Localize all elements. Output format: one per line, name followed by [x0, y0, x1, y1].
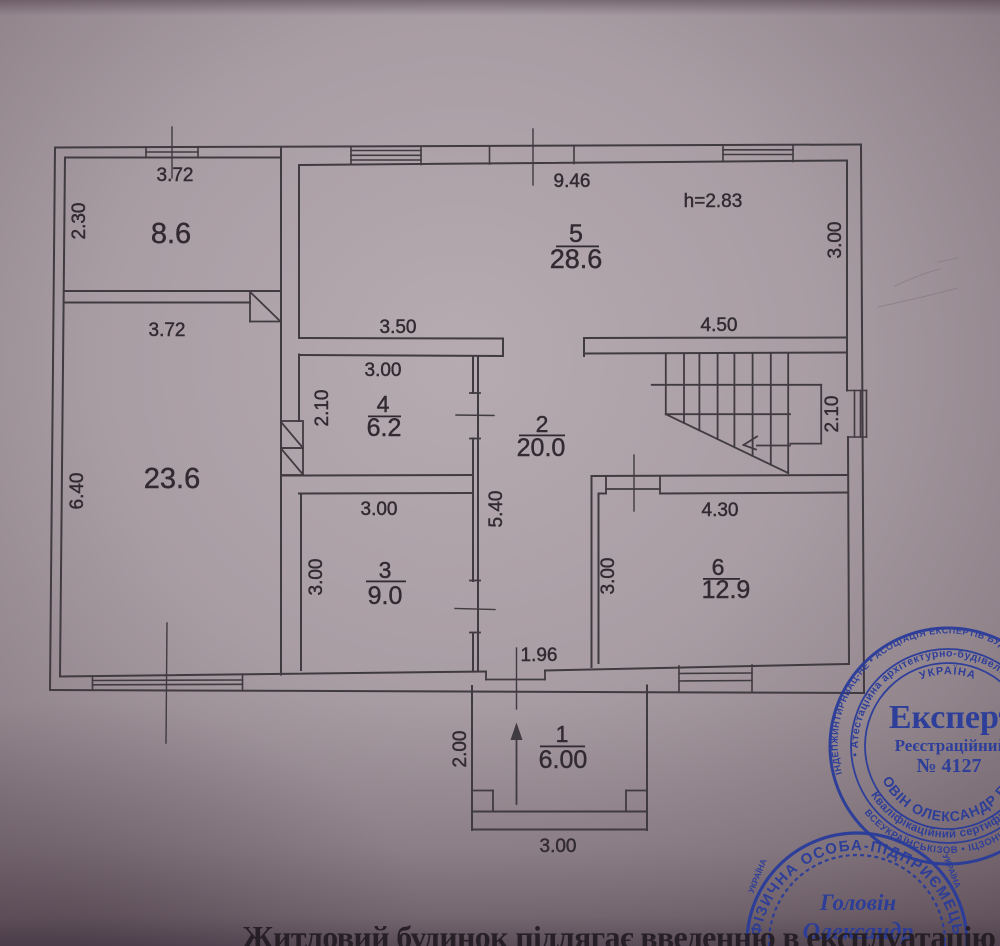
svg-text:Реєстраційний: Реєстраційний [895, 736, 1000, 755]
svg-text:3.72: 3.72 [149, 320, 186, 341]
svg-text:4.30: 4.30 [702, 500, 739, 521]
svg-text:12.9: 12.9 [702, 576, 751, 604]
svg-text:3.00: 3.00 [365, 360, 402, 381]
svg-text:3.00: 3.00 [361, 499, 398, 520]
svg-text:6.00: 6.00 [539, 746, 588, 774]
svg-text:3: 3 [379, 557, 392, 583]
svg-text:8.6: 8.6 [151, 218, 191, 250]
svg-text:3.00: 3.00 [598, 558, 619, 595]
svg-text:1.96: 1.96 [521, 645, 558, 666]
svg-text:20.0: 20.0 [517, 434, 566, 462]
svg-text:9.46: 9.46 [554, 171, 591, 192]
svg-text:2.10: 2.10 [822, 396, 843, 433]
svg-text:6.40: 6.40 [67, 473, 88, 510]
svg-text:Житловий будинок підлягає введ: Житловий будинок підлягає введенню в екс… [242, 919, 996, 946]
svg-text:6.2: 6.2 [367, 414, 402, 442]
svg-text:Експерт: Експерт [889, 699, 1000, 736]
svg-text:2.10: 2.10 [312, 390, 333, 427]
svg-text:3.72: 3.72 [157, 165, 194, 186]
svg-text:h=2.83: h=2.83 [684, 191, 743, 212]
svg-text:Головін: Головін [819, 890, 897, 915]
svg-text:2.30: 2.30 [69, 203, 90, 240]
svg-text:28.6: 28.6 [550, 244, 603, 274]
svg-text:2.00: 2.00 [450, 731, 471, 768]
svg-text:3.50: 3.50 [380, 317, 417, 338]
svg-text:4.50: 4.50 [701, 315, 738, 336]
svg-text:3.00: 3.00 [825, 222, 846, 259]
svg-text:9.0: 9.0 [368, 582, 403, 610]
svg-text:1: 1 [556, 721, 569, 747]
svg-text:23.6: 23.6 [144, 463, 200, 495]
svg-text:3.00: 3.00 [540, 836, 577, 857]
svg-text:№ 4127: № 4127 [916, 755, 981, 777]
svg-text:3.00: 3.00 [306, 559, 327, 596]
svg-text:5.40: 5.40 [486, 491, 507, 528]
